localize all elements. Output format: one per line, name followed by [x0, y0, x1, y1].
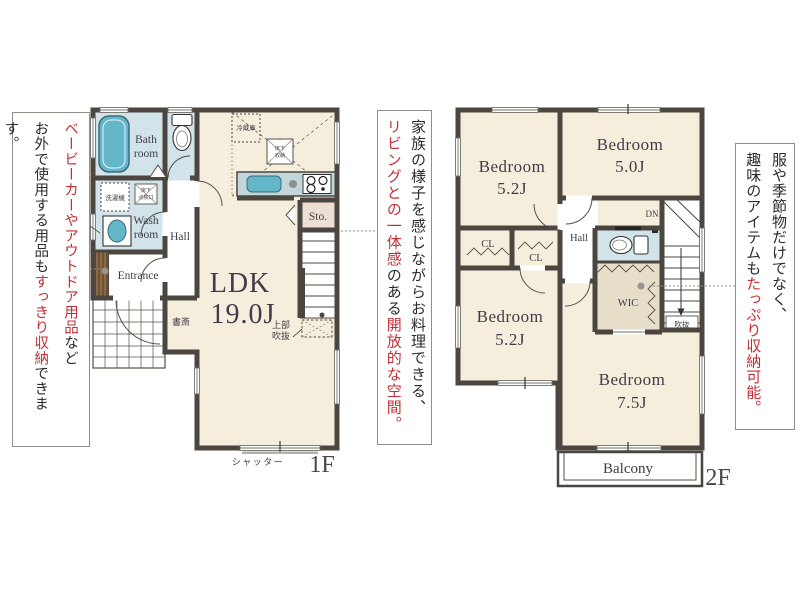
- bedroom-tr-label: Bedroom: [597, 135, 664, 154]
- annotation-text: ベービーカーやアウトドア用品: [62, 121, 78, 335]
- washing-machine-label: 洗濯機: [105, 193, 125, 202]
- bathroom-label-2: room: [134, 148, 158, 160]
- washroom-label-2: room: [134, 229, 158, 241]
- dn-label: DN: [646, 209, 659, 219]
- bedroom-tl-size: 5.2J: [497, 179, 527, 198]
- annotation-text: のある: [385, 268, 401, 318]
- upper-void-label-1: 上部: [272, 319, 290, 330]
- entrance-label: Entrance: [118, 270, 159, 282]
- ldk-label: LDK: [210, 268, 271, 299]
- shutter-bar: [242, 452, 318, 455]
- annotation-text: すっきり収納: [32, 274, 48, 366]
- underfloor-label-1: 床下: [275, 145, 285, 152]
- balcony-label: Balcony: [603, 461, 653, 477]
- underfloor-label-2: 収納: [275, 152, 285, 159]
- void-2f-label: 吹抜: [675, 319, 690, 329]
- annotation-kitchen-living: 家族の様子を感じながらお料理できる、 リビングとの一体感のある開放的な空間。: [377, 110, 432, 445]
- annotation-text: 服や季節物だけでなく、: [770, 152, 786, 323]
- bedroom-br-size: 7.5J: [617, 393, 647, 412]
- wash-basin-icon: [103, 216, 131, 246]
- bedroom-tr-size: 5.0J: [615, 157, 645, 176]
- study-label: 書斎: [172, 316, 190, 327]
- annotation-text: 開放的な空間。: [385, 317, 401, 433]
- toilet-1f-icon: [172, 115, 192, 151]
- floor-2f-label: 2F: [705, 465, 730, 491]
- bathtub-icon: [99, 116, 129, 172]
- floor-1f: LDK 19.0J Bath room Wash room Hall Entra…: [79, 108, 340, 479]
- hall-2f-label: Hall: [570, 233, 588, 244]
- washroom-label-1: Wash: [133, 215, 159, 227]
- floor-hatch-label-1: 床下: [141, 187, 151, 194]
- wic-leader-dot: [638, 283, 645, 290]
- annotation-wic-storage: 服や季節物だけでなく、 趣味のアイテムもたっぷり収納可能。: [735, 143, 795, 430]
- closet2-label: CL: [529, 253, 542, 264]
- wic-label: WIC: [618, 298, 638, 309]
- toilet-2f-door: [615, 227, 641, 231]
- hall-1f-label: Hall: [170, 231, 190, 243]
- floor-hatch-label-2: 点検口: [138, 194, 153, 201]
- faucet-icon: [289, 180, 297, 188]
- bathroom-label-1: Bath: [135, 134, 157, 146]
- closet1-label: CL: [481, 239, 494, 250]
- annotation-text: など: [62, 335, 78, 366]
- bedroom-tl-label: Bedroom: [479, 157, 546, 176]
- upper-void-label-2: 吹抜: [272, 330, 290, 341]
- annotation-text: 家族の様子を感じながらお料理できる、: [409, 119, 425, 416]
- annotation-text: たっぷり収納可能。: [744, 276, 760, 416]
- floorplan-page: { "floor1": { "label": "1F", "ldk": "LDK…: [0, 0, 800, 600]
- annotation-text: 趣味のアイテムも: [744, 152, 760, 276]
- refrigerator-label: 冷蔵庫: [236, 123, 256, 132]
- bedroom-br-label: Bedroom: [599, 370, 666, 389]
- entrance-porch-tiles: [93, 298, 165, 368]
- ldk-size-label: 19.0J: [211, 299, 276, 330]
- annotation-text: リビングとの一体感: [385, 119, 401, 268]
- floor-1f-label: 1F: [309, 452, 334, 478]
- kitchen-sink-icon: [247, 176, 281, 192]
- bedroom-bl-label: Bedroom: [477, 307, 544, 326]
- annotation-text: お外で使用する用品も: [32, 121, 48, 274]
- stove-icon: [303, 175, 331, 194]
- bedroom-bl-size: 5.2J: [495, 330, 525, 349]
- shutter-label: シャッター: [232, 457, 285, 467]
- storage-1f-label: Sto.: [309, 211, 327, 223]
- annotation-outdoor-storage: ベービーカーやアウトドア用品など お外で使用する用品もすっきり収納できます。: [12, 112, 90, 447]
- floor-hatch: [135, 184, 157, 204]
- entrance-leader-dot: [102, 268, 109, 275]
- floor-2f: Bedroom 5.2J Bedroom 5.0J Bedroom 5.2J B…: [456, 104, 731, 491]
